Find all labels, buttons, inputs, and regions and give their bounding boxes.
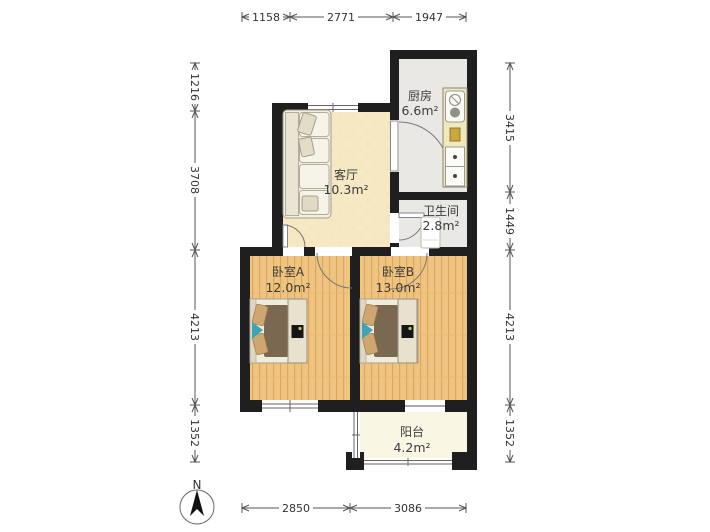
- room-name: 客厅: [334, 167, 358, 182]
- wall: [452, 452, 477, 470]
- stove-icon: [446, 147, 465, 186]
- dim-label: 4213: [503, 313, 516, 341]
- room-name: 卧室A: [272, 264, 305, 279]
- wall: [304, 247, 315, 256]
- dim-label: 3415: [503, 114, 516, 142]
- balcony-slider: [405, 400, 445, 412]
- wall: [445, 400, 477, 412]
- dim-right: 3415 1449 4213 1352: [503, 63, 517, 462]
- dim-left: 1216 3708 4213 1352: [188, 63, 202, 462]
- wall: [390, 50, 477, 59]
- wall: [399, 192, 467, 200]
- room-area: 13.0m²: [375, 280, 420, 295]
- wall: [350, 247, 360, 412]
- dim-label: 1352: [188, 419, 201, 447]
- wall: [272, 103, 283, 256]
- north-compass-icon: N: [180, 478, 214, 524]
- room-label-bedroom-a: 卧室A 12.0m²: [265, 264, 310, 295]
- dim-label: 3086: [394, 502, 422, 515]
- balcony-window-bottom: [364, 458, 452, 466]
- room-area: 2.8m²: [422, 218, 459, 233]
- room-area: 10.3m²: [323, 182, 368, 197]
- bed-a: [250, 299, 307, 363]
- room-area: 6.6m²: [401, 103, 438, 118]
- dim-label: 1449: [503, 207, 516, 235]
- footstool: [302, 196, 318, 211]
- dim-label: 1158: [252, 11, 280, 24]
- wall: [390, 172, 399, 213]
- sofa: [283, 110, 331, 218]
- dim-label: 3708: [188, 166, 201, 194]
- tv: [402, 325, 414, 338]
- room-label-bathroom: 卫生间 2.8m²: [422, 204, 459, 233]
- floorplan: 厨房 6.6m² 客厅 10.3m² 卫生间 2.8m² 卧室A 12.0m² …: [0, 0, 710, 532]
- wall: [240, 400, 262, 412]
- dim-top: 1158 2771 1947: [242, 11, 466, 25]
- dim-bottom: 2850 3086: [242, 502, 466, 516]
- room-area: 12.0m²: [265, 280, 310, 295]
- room-name: 阳台: [400, 424, 424, 439]
- dim-label: 4213: [188, 313, 201, 341]
- bedroom-a-window: [262, 400, 318, 412]
- wall: [318, 400, 405, 412]
- dim-label: 2771: [327, 11, 355, 24]
- room-name: 卫生间: [423, 204, 459, 218]
- tv-light: [408, 327, 411, 330]
- bed-b: [360, 299, 418, 363]
- room-area: 4.2m²: [393, 440, 430, 455]
- sink-icon: [446, 91, 465, 122]
- wall: [358, 103, 399, 112]
- room-name: 厨房: [408, 88, 432, 103]
- room-label-bedroom-b: 卧室B 13.0m²: [375, 264, 420, 295]
- tv: [292, 325, 304, 338]
- tv-light: [298, 327, 301, 330]
- dim-label: 1216: [188, 73, 201, 101]
- kitchen-counter: [443, 88, 467, 187]
- wall: [467, 50, 477, 455]
- dim-label: 1352: [503, 419, 516, 447]
- room-name: 卧室B: [382, 264, 414, 279]
- dim-label: 1947: [415, 11, 443, 24]
- balcony-window-left: [352, 412, 360, 458]
- small-appliance: [450, 128, 460, 141]
- dim-label: 2850: [282, 502, 310, 515]
- wall: [240, 247, 250, 412]
- compass-needle-icon: [190, 490, 204, 516]
- floorplan-canvas: 厨房 6.6m² 客厅 10.3m² 卫生间 2.8m² 卧室A 12.0m² …: [0, 0, 710, 532]
